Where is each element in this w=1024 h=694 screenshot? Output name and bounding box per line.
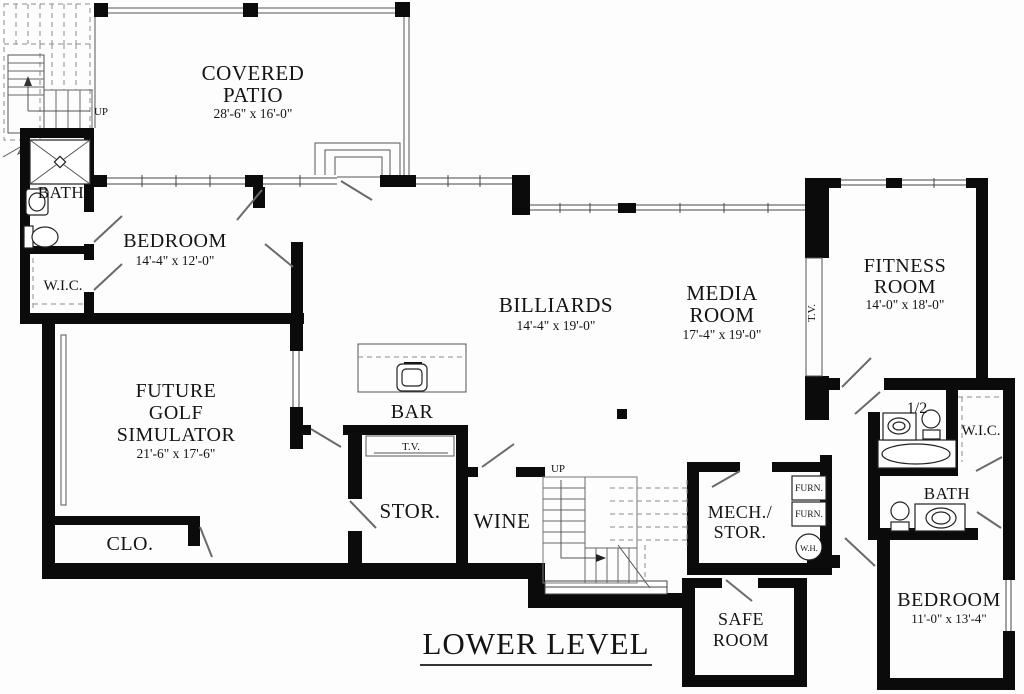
room-label-bar: BAR	[391, 401, 434, 423]
label-furn-1: FURN.	[795, 484, 823, 494]
room-dims-bedroom1: 14'-4" x 12'-0"	[136, 253, 215, 268]
room-label-fitness-2: ROOM	[874, 276, 936, 298]
room-label-wic2: W.I.C.	[961, 423, 1000, 439]
up-label-left: UP	[94, 106, 108, 118]
room-label-stor: STOR.	[379, 499, 440, 523]
room-label-clo: CLO.	[107, 533, 154, 555]
plan-title-text: LOWER LEVEL	[422, 626, 649, 661]
golf-screen	[61, 335, 66, 505]
room-label-golf-1: FUTURE	[136, 380, 217, 402]
room-label-golf-2: GOLF	[149, 402, 203, 424]
label-water-heater: W.H.	[800, 543, 818, 553]
room-label-tv-nook: T.V.	[402, 441, 420, 453]
bath2-toilet	[891, 502, 909, 531]
room-label-bath1: BATH	[38, 183, 84, 202]
room-label-media-1: MEDIA	[686, 281, 758, 305]
doors	[94, 181, 1002, 601]
stairs-center	[543, 477, 687, 588]
room-label-wine: WINE	[474, 509, 531, 533]
walls	[20, 2, 1015, 690]
floor-plan-page: UP	[0, 0, 1024, 694]
room-label-bath2: BATH	[924, 484, 970, 503]
room-labels: COVERED PATIO 28'-6" x 16'-0" BATH W.I.C…	[38, 61, 1001, 650]
room-label-tv-media: T.V.	[806, 304, 818, 322]
floor-plan-canvas: UP	[0, 0, 1024, 694]
room-label-safe-1: SAFE	[718, 609, 764, 629]
room-label-half-bath: 1/2	[907, 400, 927, 417]
room-label-covered-patio-1: COVERED	[202, 61, 305, 85]
tub	[878, 440, 956, 468]
room-label-billiards: BILLIARDS	[499, 293, 613, 317]
room-label-bedroom1: BEDROOM	[123, 230, 227, 252]
room-dims-covered-patio: 28'-6" x 16'-0"	[214, 106, 293, 121]
room-dims-golf: 21'-6" x 17'-6"	[137, 446, 216, 461]
room-label-wic1: W.I.C.	[43, 278, 82, 294]
room-dims-media: 17'-4" x 19'-0"	[683, 327, 762, 342]
bath2-vanity	[915, 504, 965, 531]
bath1-toilet	[24, 226, 58, 248]
room-label-bedroom2: BEDROOM	[897, 589, 1001, 611]
room-dims-bedroom2: 11'-0" x 13'-4"	[911, 611, 986, 626]
room-label-mech-1: MECH./	[708, 502, 773, 522]
shower	[30, 140, 90, 184]
half-bath-sink	[883, 413, 916, 440]
up-label-center: UP	[551, 463, 565, 475]
plan-title: LOWER LEVEL	[420, 626, 652, 666]
room-label-media-2: ROOM	[689, 303, 754, 327]
room-dims-fitness: 14'-0" x 18'-0"	[866, 297, 945, 312]
room-label-covered-patio-2: PATIO	[223, 83, 283, 107]
room-label-fitness-1: FITNESS	[864, 255, 946, 277]
bar-counter	[358, 344, 466, 392]
title-underline	[420, 664, 652, 666]
label-furn-2: FURN.	[795, 510, 823, 520]
room-label-mech-2: STOR.	[714, 522, 767, 542]
room-label-safe-2: ROOM	[713, 630, 769, 650]
room-dims-billiards: 14'-4" x 19'-0"	[517, 318, 596, 333]
room-label-golf-3: SIMULATOR	[117, 424, 236, 446]
